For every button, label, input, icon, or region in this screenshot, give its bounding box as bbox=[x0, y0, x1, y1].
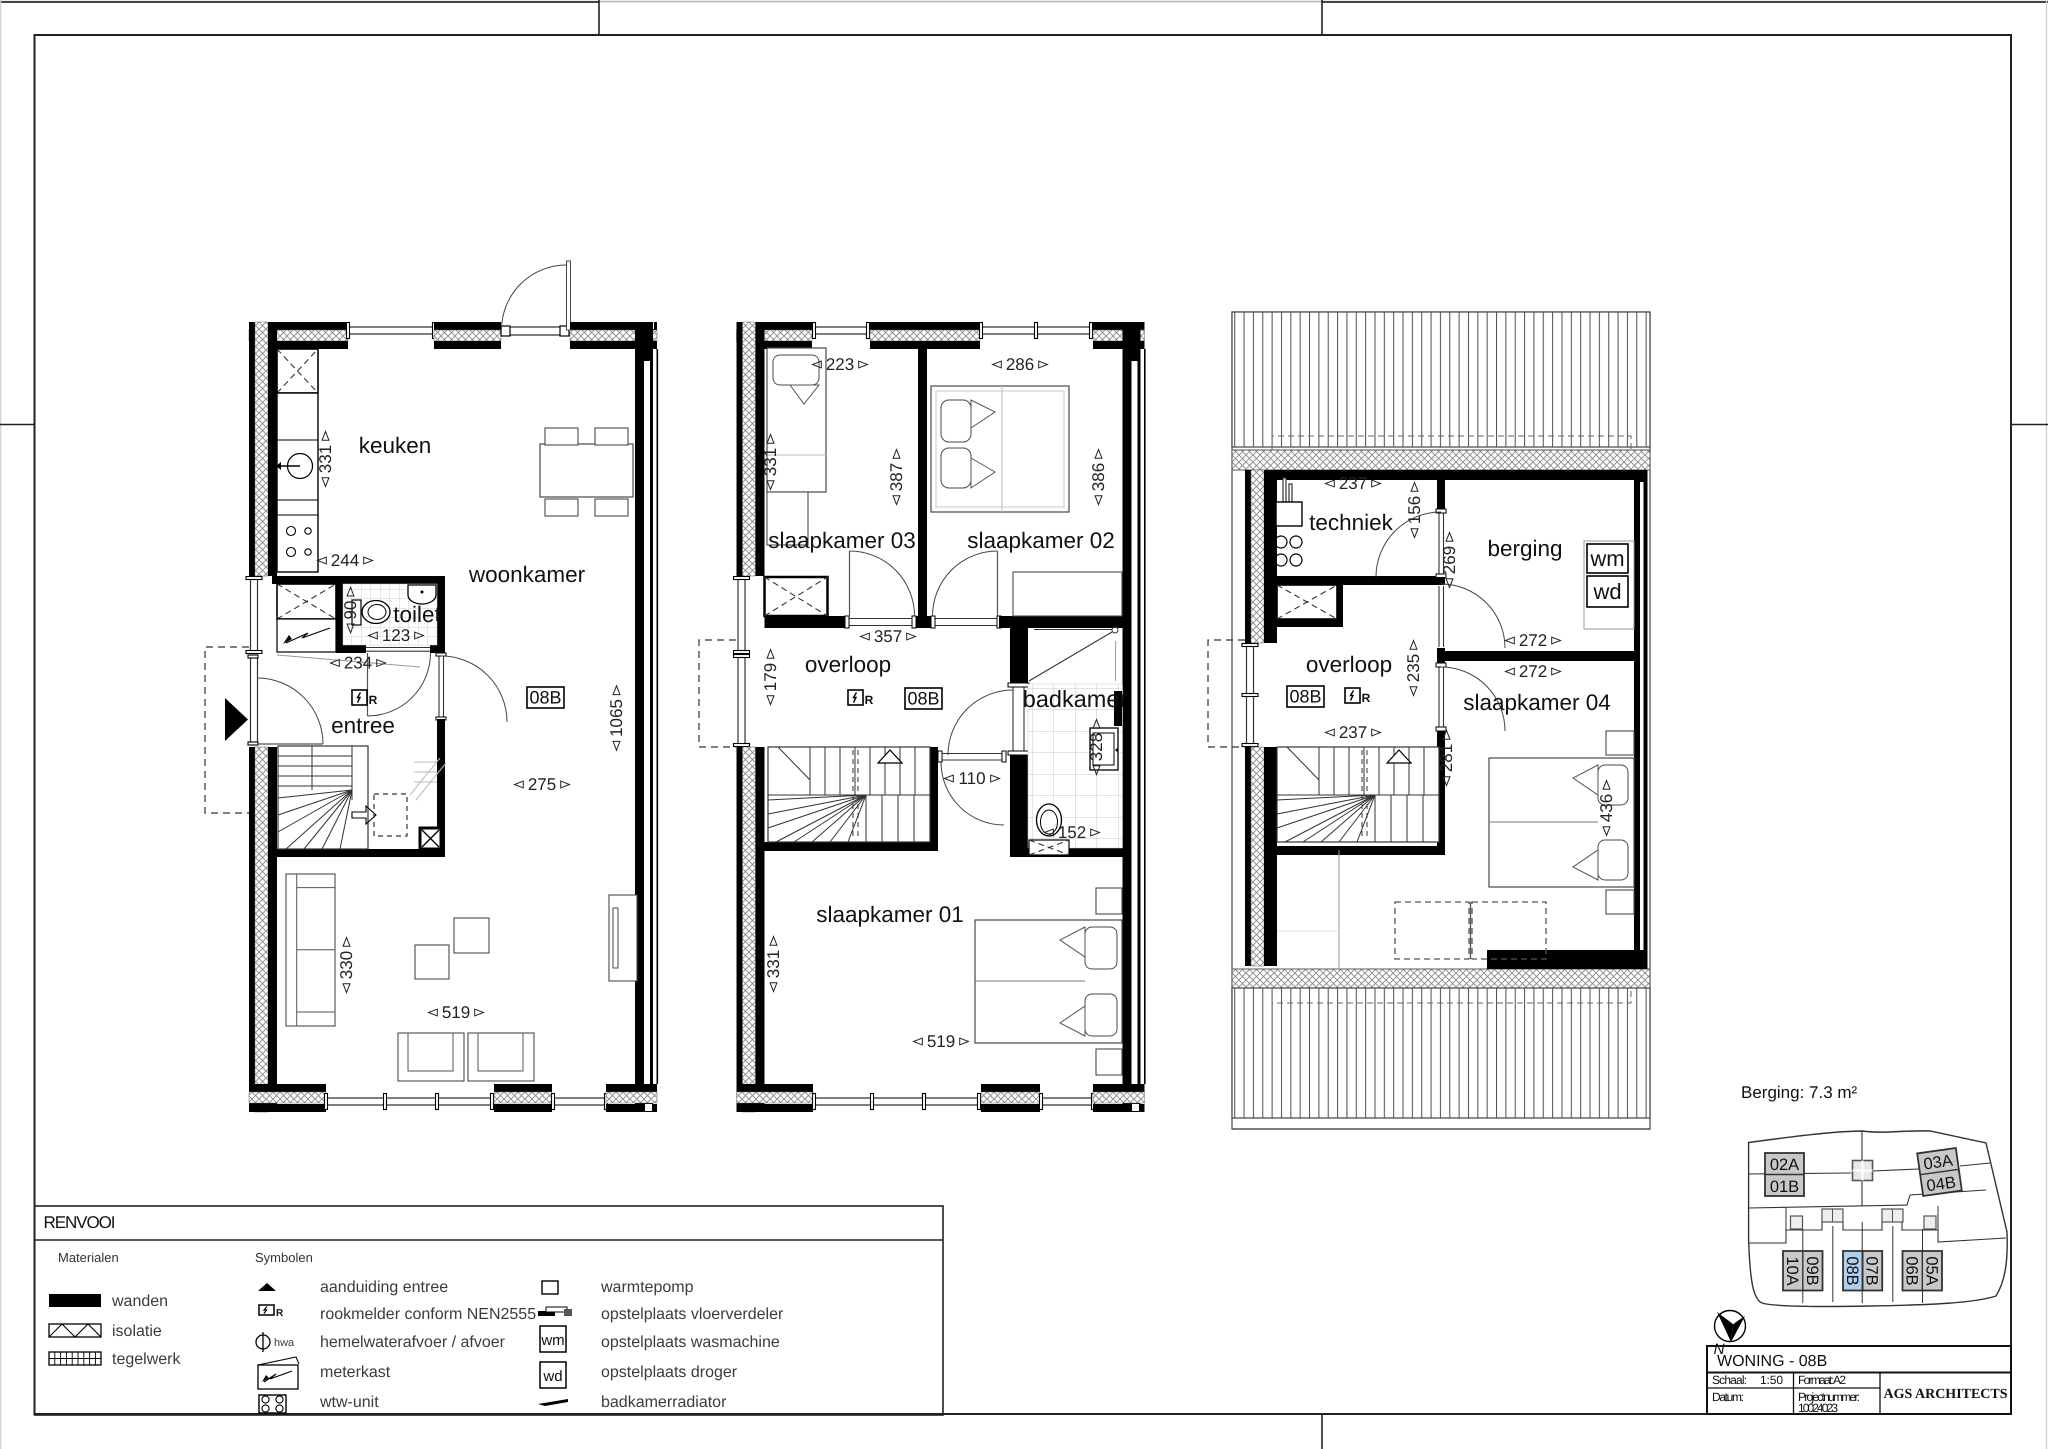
svg-text:R: R bbox=[369, 693, 378, 707]
svg-text:AGS ARCHITECTS: AGS ARCHITECTS bbox=[1883, 1387, 2007, 1402]
svg-text:warmtepomp: warmtepomp bbox=[600, 1279, 694, 1296]
svg-text:235: 235 bbox=[1404, 654, 1423, 682]
svg-text:02A: 02A bbox=[1770, 1156, 1799, 1174]
svg-text:519: 519 bbox=[442, 1003, 470, 1022]
svg-text:Schaal:: Schaal: bbox=[1712, 1373, 1747, 1387]
svg-text:269: 269 bbox=[1440, 546, 1459, 574]
svg-text:179: 179 bbox=[761, 663, 780, 691]
svg-text:08B: 08B bbox=[529, 688, 561, 708]
svg-text:badkamer: badkamer bbox=[1023, 686, 1128, 712]
svg-text:slaapkamer 04: slaapkamer 04 bbox=[1463, 690, 1611, 715]
svg-text:09B: 09B bbox=[1803, 1256, 1821, 1285]
svg-text:hwa: hwa bbox=[274, 1337, 295, 1349]
svg-text:slaapkamer 01: slaapkamer 01 bbox=[816, 902, 964, 927]
svg-text:opstelplaats vloerverdeler: opstelplaats vloerverdeler bbox=[601, 1306, 784, 1323]
svg-text:Berging: 7.3 m²: Berging: 7.3 m² bbox=[1741, 1083, 1858, 1102]
svg-text:436: 436 bbox=[1597, 794, 1616, 822]
svg-text:357: 357 bbox=[874, 627, 902, 646]
svg-text:opstelplaats wasmachine: opstelplaats wasmachine bbox=[601, 1334, 780, 1351]
svg-text:05A: 05A bbox=[1923, 1256, 1941, 1285]
svg-text:wanden: wanden bbox=[111, 1293, 168, 1310]
svg-text:entree: entree bbox=[331, 713, 395, 738]
svg-text:keuken: keuken bbox=[359, 433, 432, 458]
svg-text:berging: berging bbox=[1487, 536, 1562, 561]
svg-text:WONING - 08B: WONING - 08B bbox=[1717, 1353, 1827, 1370]
svg-text:rookmelder conform NEN2555: rookmelder conform NEN2555 bbox=[320, 1306, 536, 1323]
svg-text:286: 286 bbox=[1006, 355, 1034, 374]
svg-text:R: R bbox=[276, 1308, 284, 1319]
svg-text:223: 223 bbox=[826, 355, 854, 374]
svg-text:237: 237 bbox=[1339, 723, 1367, 742]
svg-text:Materialen: Materialen bbox=[58, 1250, 119, 1265]
svg-text:110: 110 bbox=[958, 769, 985, 788]
svg-text:08B: 08B bbox=[1843, 1256, 1861, 1285]
svg-text:wtw-unit: wtw-unit bbox=[319, 1394, 379, 1411]
svg-text:244: 244 bbox=[331, 551, 359, 570]
svg-text:R: R bbox=[1362, 691, 1371, 705]
svg-text:isolatie: isolatie bbox=[112, 1323, 162, 1340]
svg-text:90: 90 bbox=[341, 601, 360, 620]
svg-text:opstelplaats droger: opstelplaats droger bbox=[601, 1364, 738, 1381]
svg-text:wm: wm bbox=[540, 1332, 564, 1349]
svg-text:01B: 01B bbox=[1770, 1178, 1799, 1196]
svg-text:1065: 1065 bbox=[607, 699, 626, 737]
svg-text:meterkast: meterkast bbox=[320, 1364, 391, 1381]
svg-text:08B: 08B bbox=[907, 689, 939, 709]
svg-text:07B: 07B bbox=[1863, 1256, 1881, 1285]
svg-text:152: 152 bbox=[1058, 823, 1086, 842]
svg-text:330: 330 bbox=[337, 951, 356, 979]
svg-text:wd: wd bbox=[1592, 579, 1621, 604]
svg-text:06B: 06B bbox=[1903, 1256, 1921, 1285]
svg-text:Datum:: Datum: bbox=[1712, 1390, 1744, 1404]
svg-text:toilet: toilet bbox=[393, 602, 441, 627]
svg-text:10A: 10A bbox=[1783, 1256, 1801, 1285]
svg-text:10024023: 10024023 bbox=[1798, 1401, 1838, 1415]
svg-text:08B: 08B bbox=[1289, 687, 1321, 707]
svg-text:328: 328 bbox=[1087, 733, 1106, 761]
svg-text:275: 275 bbox=[528, 775, 556, 794]
svg-text:387: 387 bbox=[887, 463, 906, 491]
svg-text:slaapkamer 02: slaapkamer 02 bbox=[967, 528, 1115, 553]
svg-text:wm: wm bbox=[1589, 546, 1624, 571]
svg-text:331: 331 bbox=[316, 445, 335, 473]
svg-text:hemelwaterafvoer / afvoer: hemelwaterafvoer / afvoer bbox=[320, 1334, 506, 1351]
svg-text:tegelwerk: tegelwerk bbox=[112, 1351, 181, 1368]
svg-text:331: 331 bbox=[764, 950, 783, 978]
svg-text:Symbolen: Symbolen bbox=[255, 1250, 313, 1265]
svg-text:272: 272 bbox=[1519, 662, 1547, 681]
svg-text:overloop: overloop bbox=[1306, 652, 1392, 677]
svg-text:wd: wd bbox=[542, 1368, 562, 1385]
svg-text:aanduiding entree: aanduiding entree bbox=[320, 1279, 448, 1296]
svg-text:123: 123 bbox=[382, 626, 410, 645]
svg-text:281: 281 bbox=[1437, 744, 1456, 772]
svg-text:156: 156 bbox=[1405, 496, 1424, 524]
svg-text:1:50: 1:50 bbox=[1760, 1373, 1783, 1387]
svg-text:234: 234 bbox=[344, 654, 372, 673]
svg-text:237: 237 bbox=[1339, 474, 1367, 493]
svg-text:386: 386 bbox=[1089, 463, 1108, 491]
svg-text:woonkamer: woonkamer bbox=[468, 562, 586, 587]
svg-text:techniek: techniek bbox=[1309, 510, 1394, 535]
svg-text:slaapkamer 03: slaapkamer 03 bbox=[768, 528, 916, 553]
svg-text:Formaat: A2: Formaat: A2 bbox=[1798, 1373, 1846, 1387]
svg-text:272: 272 bbox=[1519, 631, 1547, 650]
svg-text:519: 519 bbox=[927, 1032, 955, 1051]
svg-text:overloop: overloop bbox=[805, 652, 891, 677]
svg-text:R: R bbox=[865, 693, 874, 707]
svg-text:331: 331 bbox=[761, 448, 780, 476]
svg-text:RENVOOI: RENVOOI bbox=[44, 1213, 116, 1232]
svg-text:badkamerradiator: badkamerradiator bbox=[601, 1394, 727, 1411]
